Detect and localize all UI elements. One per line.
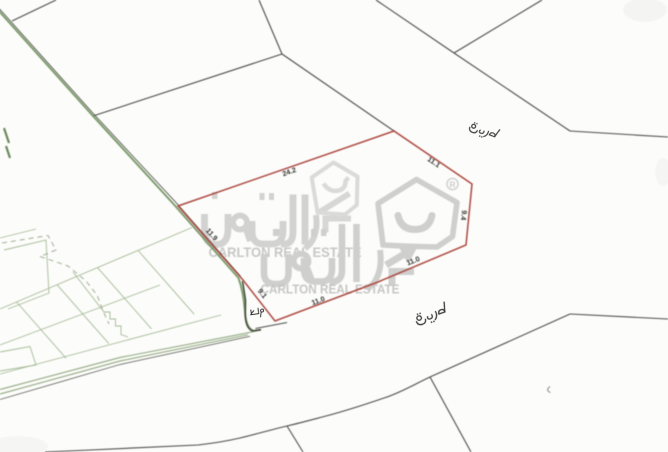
svg-text:9.4: 9.4 [459,210,469,221]
svg-text:CARLTON REAL ESTATE: CARLTON REAL ESTATE [261,282,400,297]
svg-text:R: R [449,179,455,189]
svg-text:CARLTON REAL ESTATE: CARLTON REAL ESTATE [209,245,362,260]
